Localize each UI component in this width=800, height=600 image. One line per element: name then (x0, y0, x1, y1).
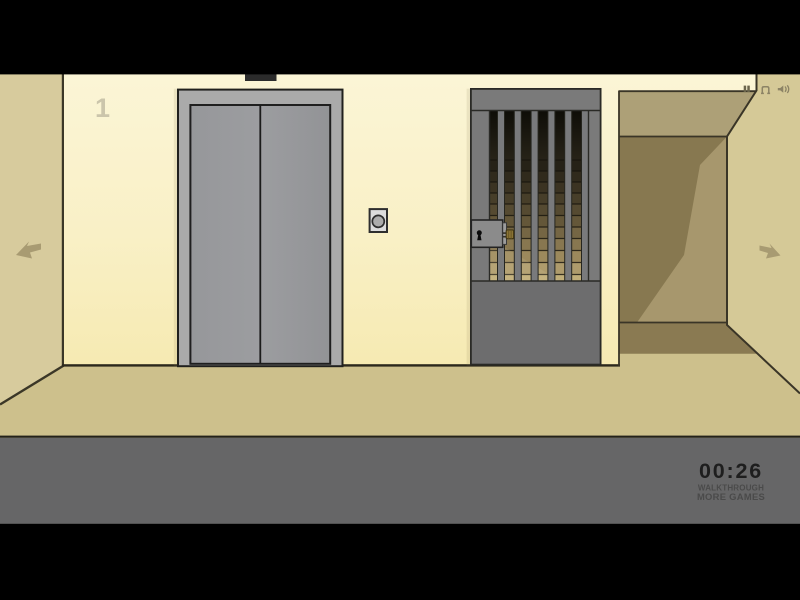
svg-text:1: 1 (95, 93, 110, 123)
svg-text:MORE GAMES: MORE GAMES (697, 491, 765, 502)
svg-text:00:26: 00:26 (699, 459, 763, 483)
